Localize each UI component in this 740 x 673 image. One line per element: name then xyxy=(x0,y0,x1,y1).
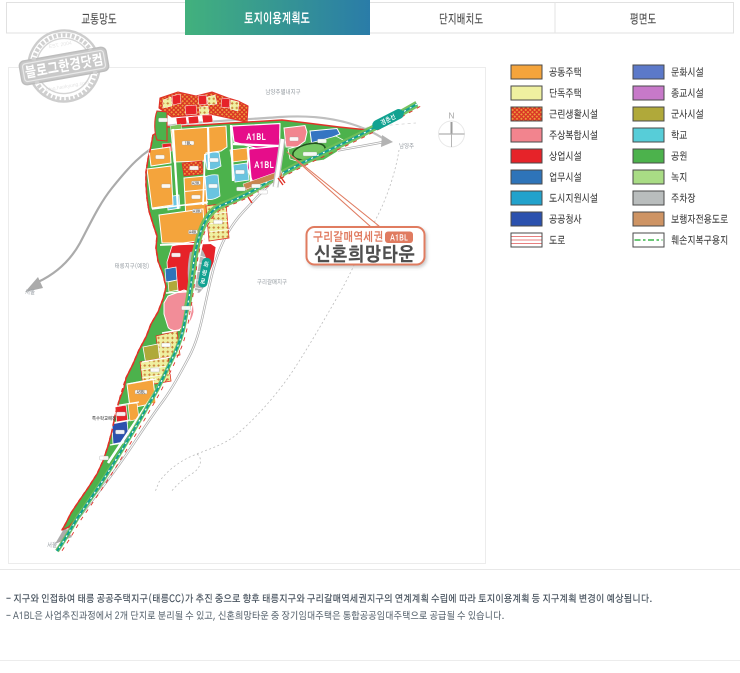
svg-text:N: N xyxy=(448,111,454,121)
